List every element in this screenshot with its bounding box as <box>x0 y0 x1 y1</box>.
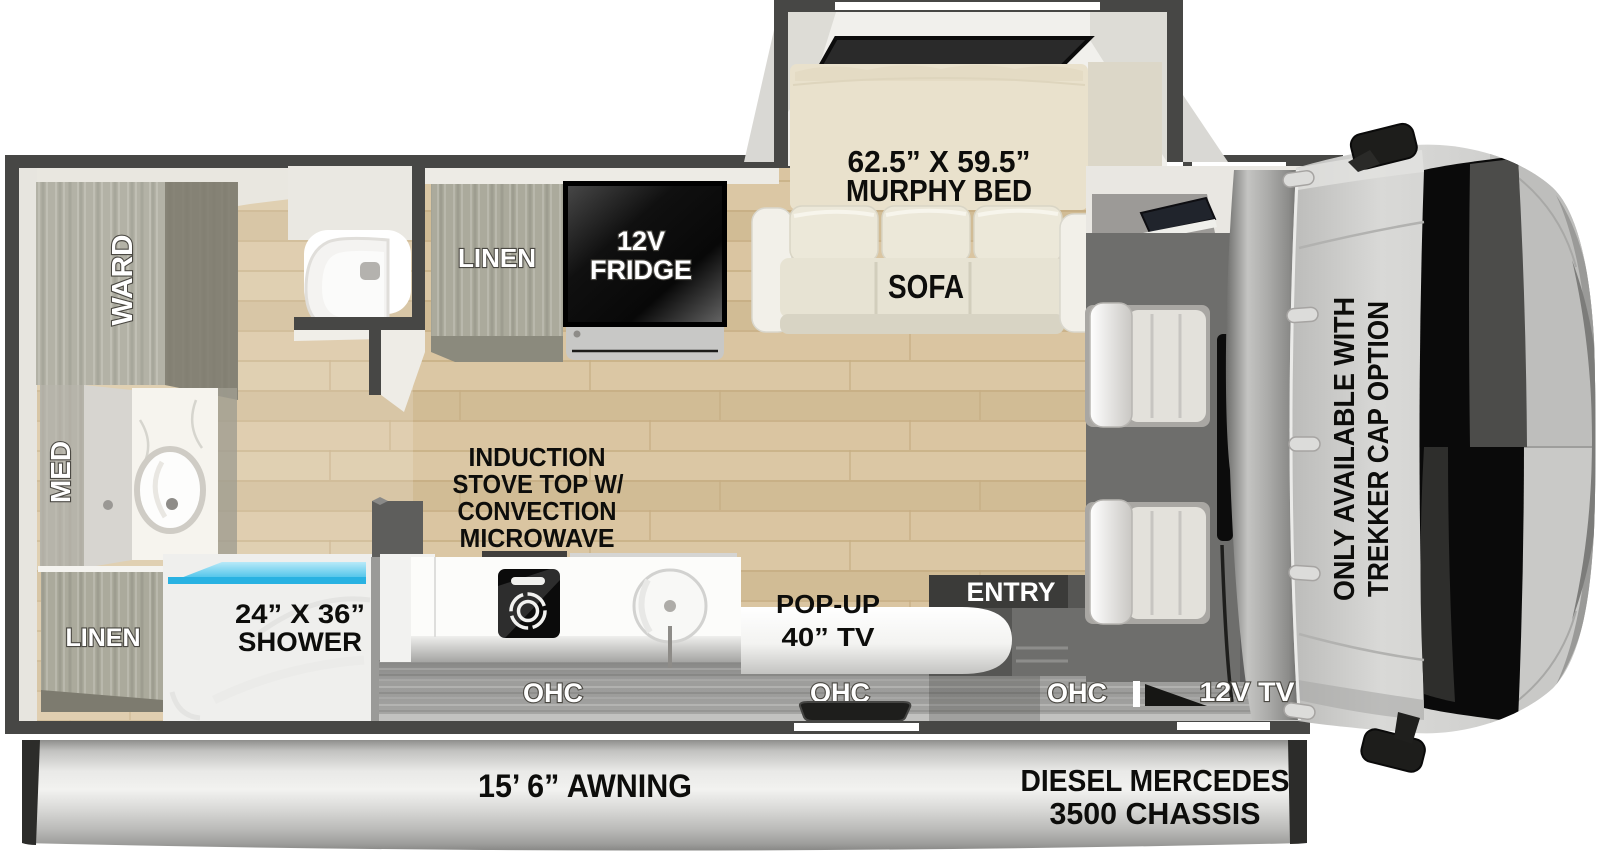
svg-text:SHOWER: SHOWER <box>238 627 362 657</box>
svg-text:24” X 36”: 24” X 36” <box>235 599 365 629</box>
svg-text:POP-UP: POP-UP <box>776 589 880 619</box>
svg-text:ENTRY: ENTRY <box>967 577 1056 607</box>
svg-text:OHC: OHC <box>1047 678 1107 708</box>
svg-text:12V TV: 12V TV <box>1200 677 1295 707</box>
svg-text:LINEN: LINEN <box>66 624 141 652</box>
svg-text:TREKKER CAP OPTION: TREKKER CAP OPTION <box>1363 301 1395 597</box>
svg-text:CONVECTION: CONVECTION <box>458 496 617 526</box>
svg-text:LINEN: LINEN <box>458 243 536 273</box>
svg-text:MICROWAVE: MICROWAVE <box>460 523 615 553</box>
svg-text:FRIDGE: FRIDGE <box>590 255 692 285</box>
svg-text:ONLY AVAILABLE WITH: ONLY AVAILABLE WITH <box>1329 297 1361 601</box>
svg-text:MURPHY BED: MURPHY BED <box>846 173 1032 208</box>
svg-text:15’ 6” AWNING: 15’ 6” AWNING <box>478 768 692 804</box>
svg-text:3500 CHASSIS: 3500 CHASSIS <box>1050 796 1261 831</box>
svg-text:OHC: OHC <box>523 678 583 708</box>
svg-text:12V: 12V <box>617 226 665 256</box>
svg-text:SOFA: SOFA <box>888 268 964 305</box>
svg-text:STOVE TOP W/: STOVE TOP W/ <box>453 469 624 499</box>
svg-text:WARD: WARD <box>107 235 139 326</box>
svg-text:DIESEL MERCEDES: DIESEL MERCEDES <box>1021 763 1290 798</box>
svg-text:INDUCTION: INDUCTION <box>469 442 606 472</box>
svg-text:40” TV: 40” TV <box>782 622 876 652</box>
svg-text:MED: MED <box>45 441 76 503</box>
